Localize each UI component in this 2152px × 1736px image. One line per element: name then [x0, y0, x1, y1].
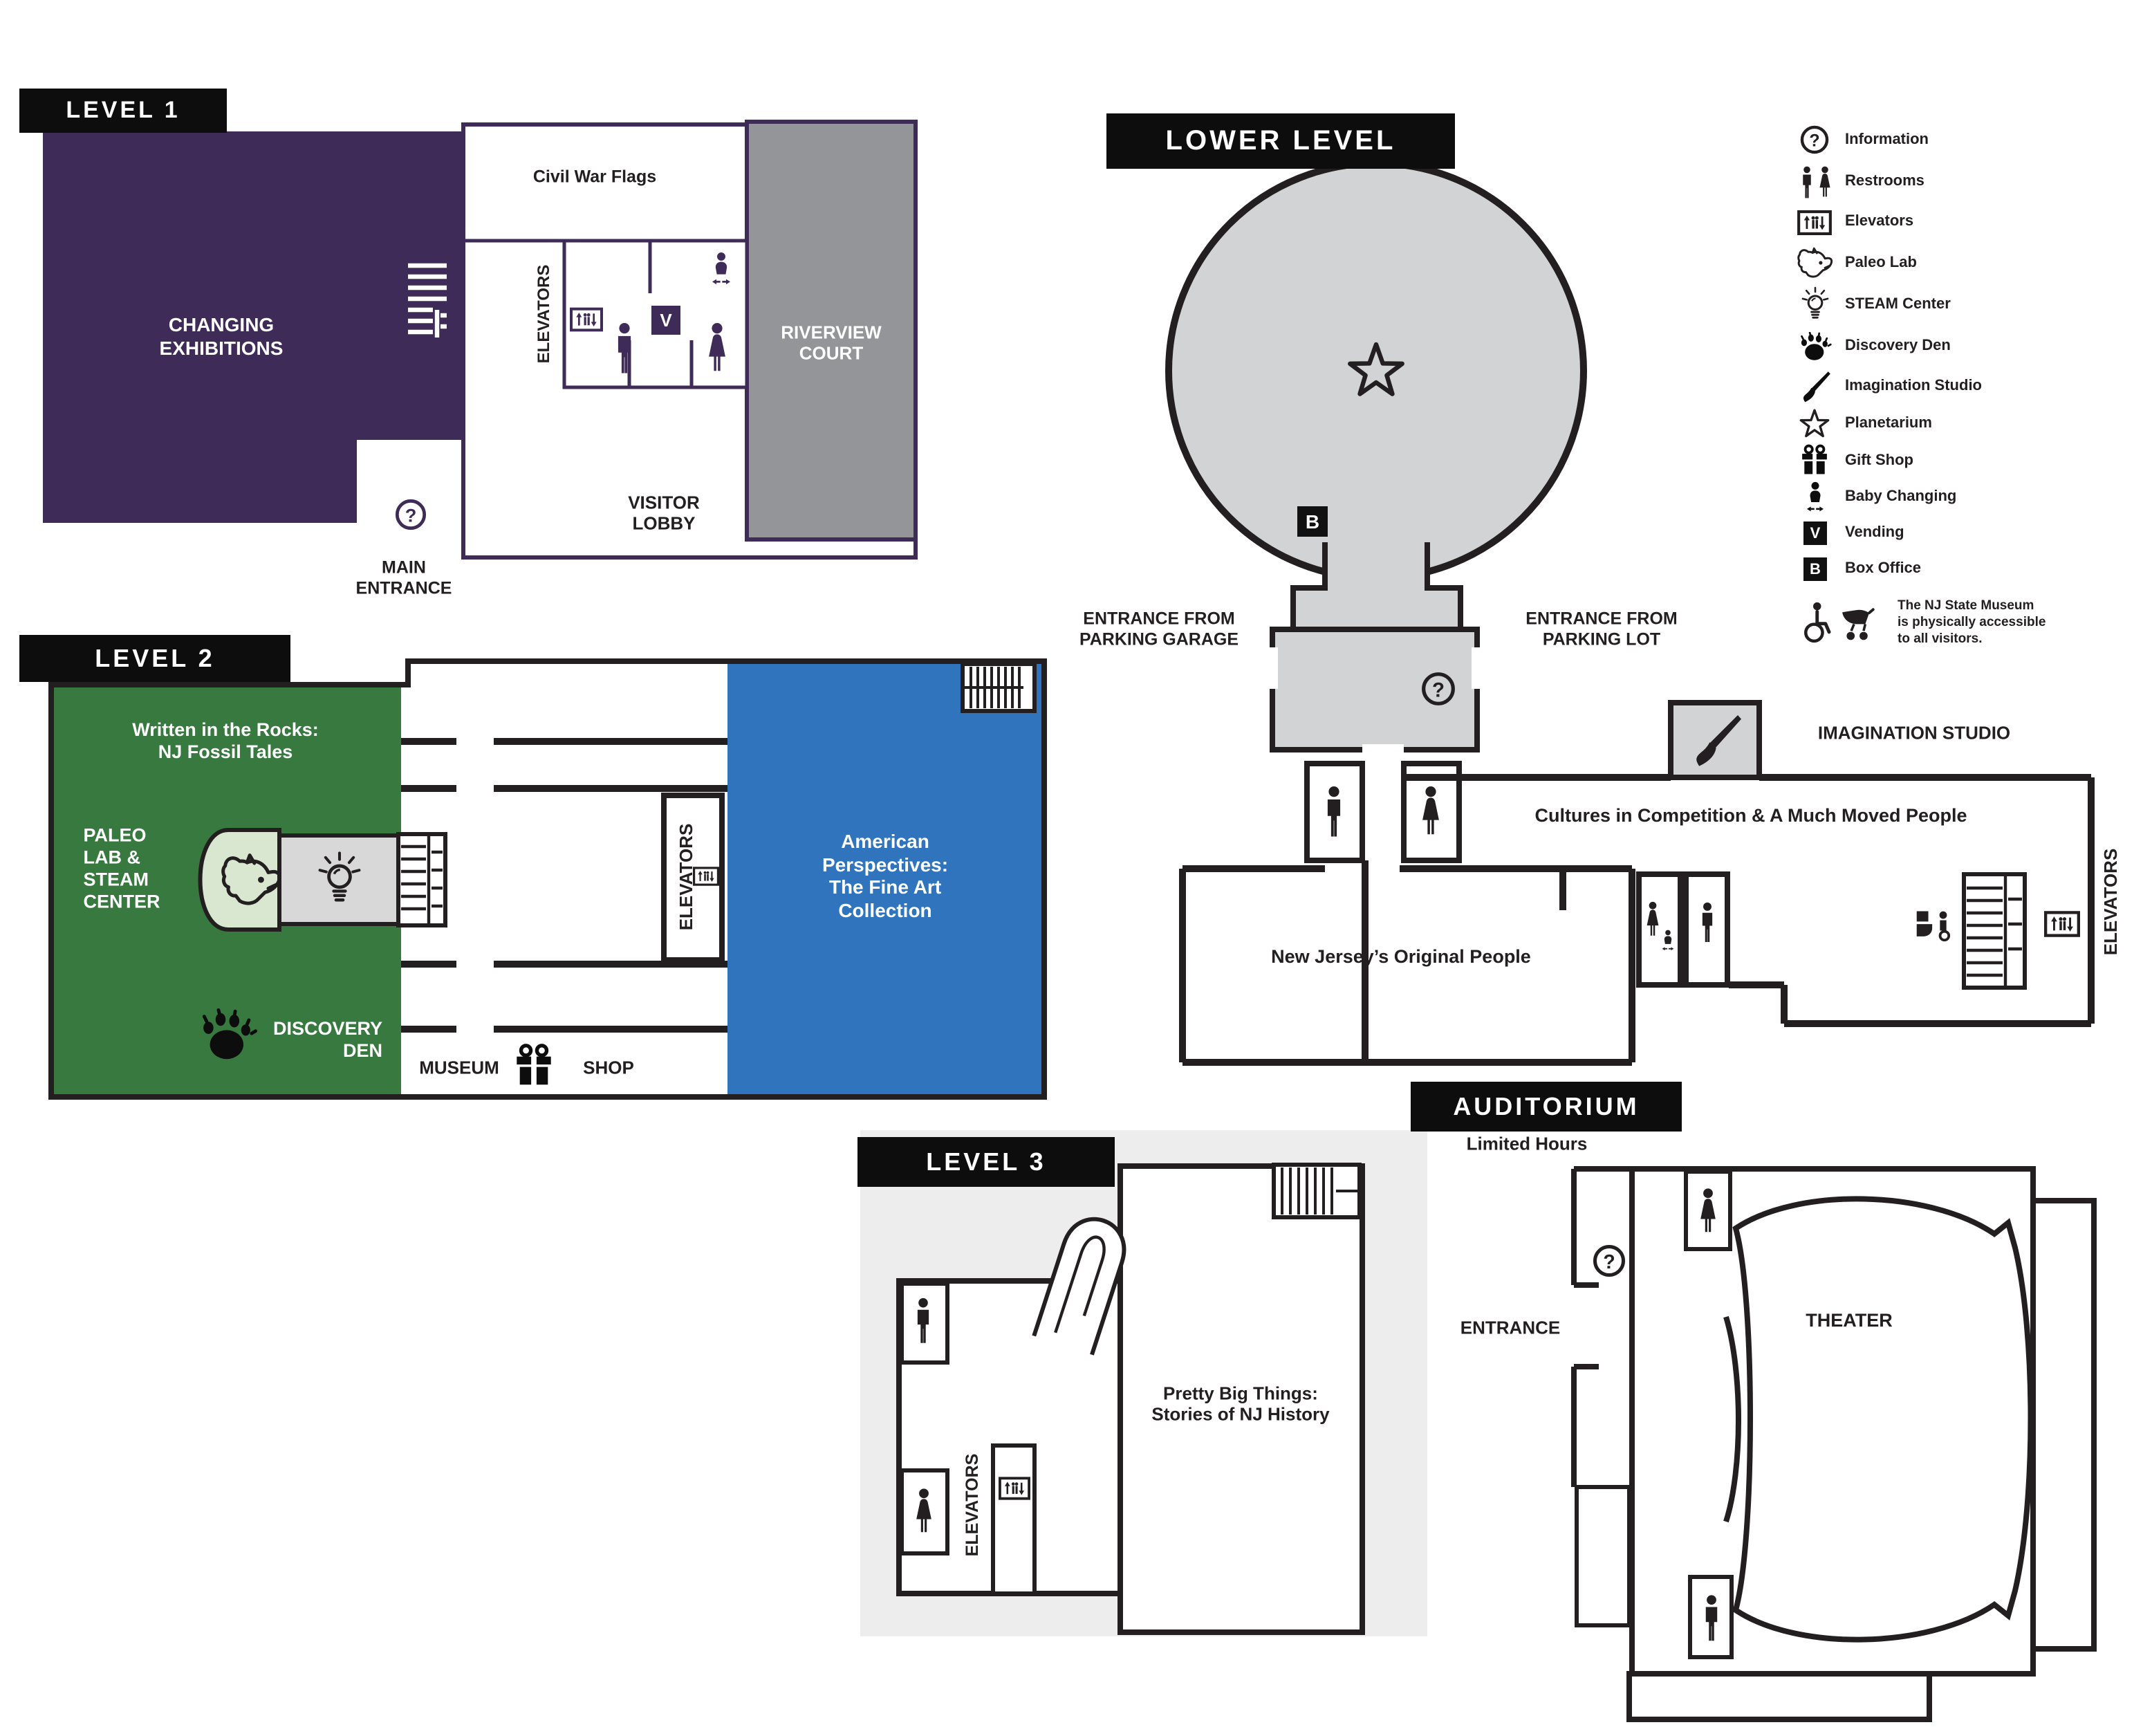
stairs-icon — [398, 834, 445, 925]
written-in-the-rocks-label: Written in the Rocks:NJ Fossil Tales — [132, 719, 319, 764]
limited-hours-label: Limited Hours — [1467, 1134, 1588, 1155]
lower-level-title-tab: LOWER LEVEL — [1106, 113, 1455, 169]
elevators-icon — [1795, 210, 1834, 235]
man-restroom-icon — [913, 1298, 934, 1345]
steam-center-icon — [1801, 285, 1830, 324]
imagination-studio-icon — [1687, 714, 1743, 769]
stairs-icon — [1964, 874, 2025, 988]
baby-changing-icon — [1660, 930, 1676, 952]
box-office-icon: B — [1297, 506, 1328, 537]
planetarium-icon — [1344, 340, 1408, 401]
woman-restroom-icon — [703, 322, 732, 375]
imagination-studio-icon — [1798, 371, 1831, 404]
shop-label: SHOP — [583, 1058, 634, 1079]
baby-changing-icon — [1802, 481, 1828, 513]
elevator-icon — [2044, 907, 2080, 941]
vending-icon: V — [1803, 521, 1827, 545]
legend-label: Imagination Studio — [1845, 378, 1982, 394]
legend-label: Gift Shop — [1845, 452, 1913, 469]
man-restroom-icon — [1698, 902, 1716, 943]
woman-restroom-icon — [1696, 1187, 1720, 1237]
legend-label: Planetarium — [1845, 415, 1932, 432]
discovery-den-icon — [198, 1008, 259, 1061]
theater-label: THEATER — [1806, 1310, 1893, 1332]
elevator-icon — [570, 306, 603, 333]
man-restroom-icon — [1322, 786, 1346, 838]
legend-label: STEAM Center — [1845, 296, 1951, 313]
museum-label: MUSEUM — [419, 1058, 499, 1079]
restrooms-icon — [1799, 166, 1815, 199]
legend-label: Paleo Lab — [1845, 255, 1917, 271]
legend-label: Box Office — [1845, 560, 1921, 577]
level3-elevator-shaft — [993, 1446, 1035, 1594]
stairs-icon — [963, 664, 1035, 711]
museum-floor-plan-map: ? — [0, 0, 2152, 1736]
box-office-icon: B — [1803, 557, 1827, 581]
information-icon — [1592, 1244, 1626, 1278]
auditorium-title-tab: AUDITORIUM — [1411, 1082, 1682, 1132]
woman-restroom-icon — [1416, 786, 1445, 838]
lower-level-elevators-label: ELEVATORS — [2100, 849, 2121, 956]
steam-center-icon — [317, 848, 362, 910]
elevator-icon — [999, 1475, 1030, 1502]
level3-plan — [860, 1130, 1427, 1636]
auditorium-plan — [1574, 1169, 2094, 1719]
entrance-from-parking-lot-label: ENTRANCE FROMPARKING LOT — [1525, 609, 1677, 650]
planetarium-icon — [1798, 408, 1831, 440]
accessibility-note: The NJ State Museum — [1898, 598, 2034, 613]
level3-elevators-label: ELEVATORS — [963, 1454, 982, 1557]
paleo-lab-icon — [1797, 246, 1834, 279]
accessible-restroom-icon — [1914, 907, 1953, 943]
vending-icon: V — [651, 306, 680, 335]
legend-label: Vending — [1845, 524, 1904, 541]
accessibility-note: is physically accessible — [1898, 615, 2046, 630]
legend-label: Information — [1845, 131, 1929, 148]
riverview-court-label: RIVERVIEWCOURT — [781, 322, 881, 364]
imagination-studio-label: IMAGINATION STUDIO — [1818, 723, 2010, 744]
nj-original-people-label: New Jersey’s Original People — [1271, 946, 1531, 968]
entrance-from-parking-garage-label: ENTRANCE FROMPARKING GARAGE — [1079, 609, 1239, 650]
man-restroom-icon — [613, 322, 636, 375]
visitor-lobby-label: VISITORLOBBY — [628, 492, 700, 534]
civil-war-flags-label: Civil War Flags — [533, 167, 656, 187]
paleo-lab-icon — [220, 848, 284, 912]
level3-title-tab: LEVEL 3 — [857, 1137, 1115, 1187]
stroller-icon — [1839, 606, 1875, 645]
main-entrance-label: MAINENTRANCE — [356, 558, 452, 599]
legend-label: Baby Changing — [1845, 488, 1956, 505]
american-perspectives-label: AmericanPerspectives: The Fine ArtCollec… — [822, 830, 948, 921]
paleo-lab-steam-label: PALEOLAB & STEAMCENTER — [83, 824, 160, 912]
information-icon — [1420, 671, 1456, 707]
stage-house — [2030, 1201, 2094, 1649]
pretty-big-things-label: Pretty Big Things:Stories of NJ History — [1151, 1383, 1329, 1425]
level1-title-tab: LEVEL 1 — [19, 89, 227, 133]
legend-label: Restrooms — [1845, 173, 1924, 190]
theater-room — [1736, 1199, 2031, 1639]
changing-exhibitions-label: CHANGINGEXHIBITIONS — [160, 313, 284, 359]
gift-shop-icon — [513, 1037, 555, 1093]
stairs-icon — [1274, 1165, 1360, 1217]
discovery-den-icon — [1798, 332, 1833, 361]
man-restroom-icon — [1701, 1594, 1722, 1643]
information-icon — [1799, 124, 1830, 155]
wheelchair-icon — [1798, 600, 1834, 645]
restrooms-icon — [1816, 166, 1834, 199]
gift-shop-icon — [1799, 444, 1830, 476]
elevator-icon — [693, 863, 719, 889]
level1-elevators-label: ELEVATORS — [534, 265, 553, 364]
level2-title-tab: LEVEL 2 — [19, 635, 290, 682]
legend-label: Elevators — [1845, 213, 1913, 230]
accessibility-note: to all visitors. — [1898, 631, 1983, 647]
cultures-in-competition-label: Cultures in Competition & A Much Moved P… — [1534, 805, 1967, 827]
woman-restroom-icon — [911, 1486, 936, 1538]
information-icon — [394, 498, 427, 531]
entrance-label: ENTRANCE — [1460, 1318, 1560, 1339]
discovery-den-label: DISCOVERYDEN — [273, 1018, 382, 1062]
baby-changing-icon — [708, 252, 734, 286]
legend-label: Discovery Den — [1845, 338, 1951, 354]
